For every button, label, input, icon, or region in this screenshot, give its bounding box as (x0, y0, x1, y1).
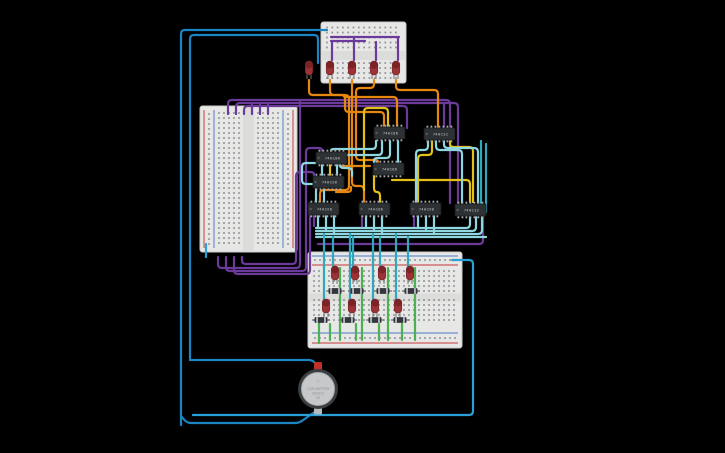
ic-label: 74HC86 (383, 131, 398, 135)
resistor[interactable] (374, 288, 392, 294)
ic-notch (360, 208, 362, 210)
resistor-band (370, 317, 372, 323)
led-dome (349, 300, 356, 307)
resistor-band (324, 317, 326, 323)
led-dome (332, 267, 339, 274)
led-dome (393, 62, 400, 69)
resistor-band (343, 317, 345, 323)
resistor-band (378, 317, 380, 323)
resistor-band (406, 288, 408, 294)
board-channel (243, 106, 254, 252)
resistor-band (386, 288, 388, 294)
resistor[interactable] (339, 317, 357, 323)
resistor-band (403, 317, 405, 323)
resistor[interactable] (348, 288, 366, 294)
ic-chip[interactable]: 74HC08 (410, 201, 441, 218)
resistor[interactable] (326, 288, 344, 294)
led-dome (306, 62, 313, 69)
ic-notch (411, 208, 413, 210)
battery-plus-mark: + (315, 377, 321, 385)
ic-chip[interactable]: 74HC08 (308, 201, 339, 218)
ic-notch (374, 168, 376, 170)
ic-notch (314, 181, 316, 183)
resistor-band (316, 317, 318, 323)
battery-label-line: COIN BATTERY (307, 387, 330, 391)
led-dome (349, 62, 356, 69)
resistor[interactable] (366, 317, 384, 323)
board-channel (321, 51, 406, 60)
ic-chip[interactable]: 74HC32 (424, 126, 455, 143)
resistor[interactable] (402, 288, 420, 294)
ic-label: 74HC32 (464, 208, 479, 212)
resistor-band (338, 288, 340, 294)
resistor-band (330, 288, 332, 294)
resistor-band (351, 317, 353, 323)
ic-label: 74HC86 (368, 207, 383, 211)
ic-chip[interactable]: 74HC32 (455, 202, 486, 219)
ic-chip[interactable]: 74HC86 (374, 125, 405, 142)
ic-chip[interactable]: 74HC86 (373, 161, 404, 178)
resistor[interactable] (312, 317, 330, 323)
ic-notch (425, 133, 427, 135)
led-dome (379, 267, 386, 274)
resistor-band (414, 288, 416, 294)
ic-chip[interactable]: 74HC08 (313, 174, 344, 191)
battery-positive-terminal (314, 362, 322, 370)
breadboard-left[interactable] (200, 106, 297, 252)
ic-label: 74HC08 (317, 207, 332, 211)
ic-label: 74HC08 (419, 207, 434, 211)
led-dome (323, 300, 330, 307)
led-dome (407, 267, 414, 274)
battery-label-line: CR2032 (312, 392, 325, 396)
ic-notch (456, 209, 458, 211)
ic-notch (375, 132, 377, 134)
ic-label: 74HC86 (382, 167, 397, 171)
ic-chip[interactable]: 74HC86 (316, 150, 347, 167)
ic-notch (309, 208, 311, 210)
resistor-band (378, 288, 380, 294)
led-dome (352, 267, 359, 274)
led-dome (327, 62, 334, 69)
resistor-band (360, 288, 362, 294)
resistor-band (352, 288, 354, 294)
circuit-workspace: 74HC8674HC3274HC8674HC8674HC0874HC0874HC… (0, 0, 725, 453)
ic-notch (317, 157, 319, 159)
ic-label: 74HC08 (322, 180, 337, 184)
led-dome (395, 300, 402, 307)
resistor-band (395, 317, 397, 323)
led-dome (372, 300, 379, 307)
led-dome (371, 62, 378, 69)
resistor[interactable] (391, 317, 409, 323)
ic-chip[interactable]: 74HC86 (359, 201, 390, 218)
ic-label: 74HC86 (325, 156, 340, 160)
circuit-canvas: 74HC8674HC3274HC8674HC8674HC0874HC0874HC… (0, 0, 725, 453)
ic-label: 74HC32 (433, 132, 448, 136)
